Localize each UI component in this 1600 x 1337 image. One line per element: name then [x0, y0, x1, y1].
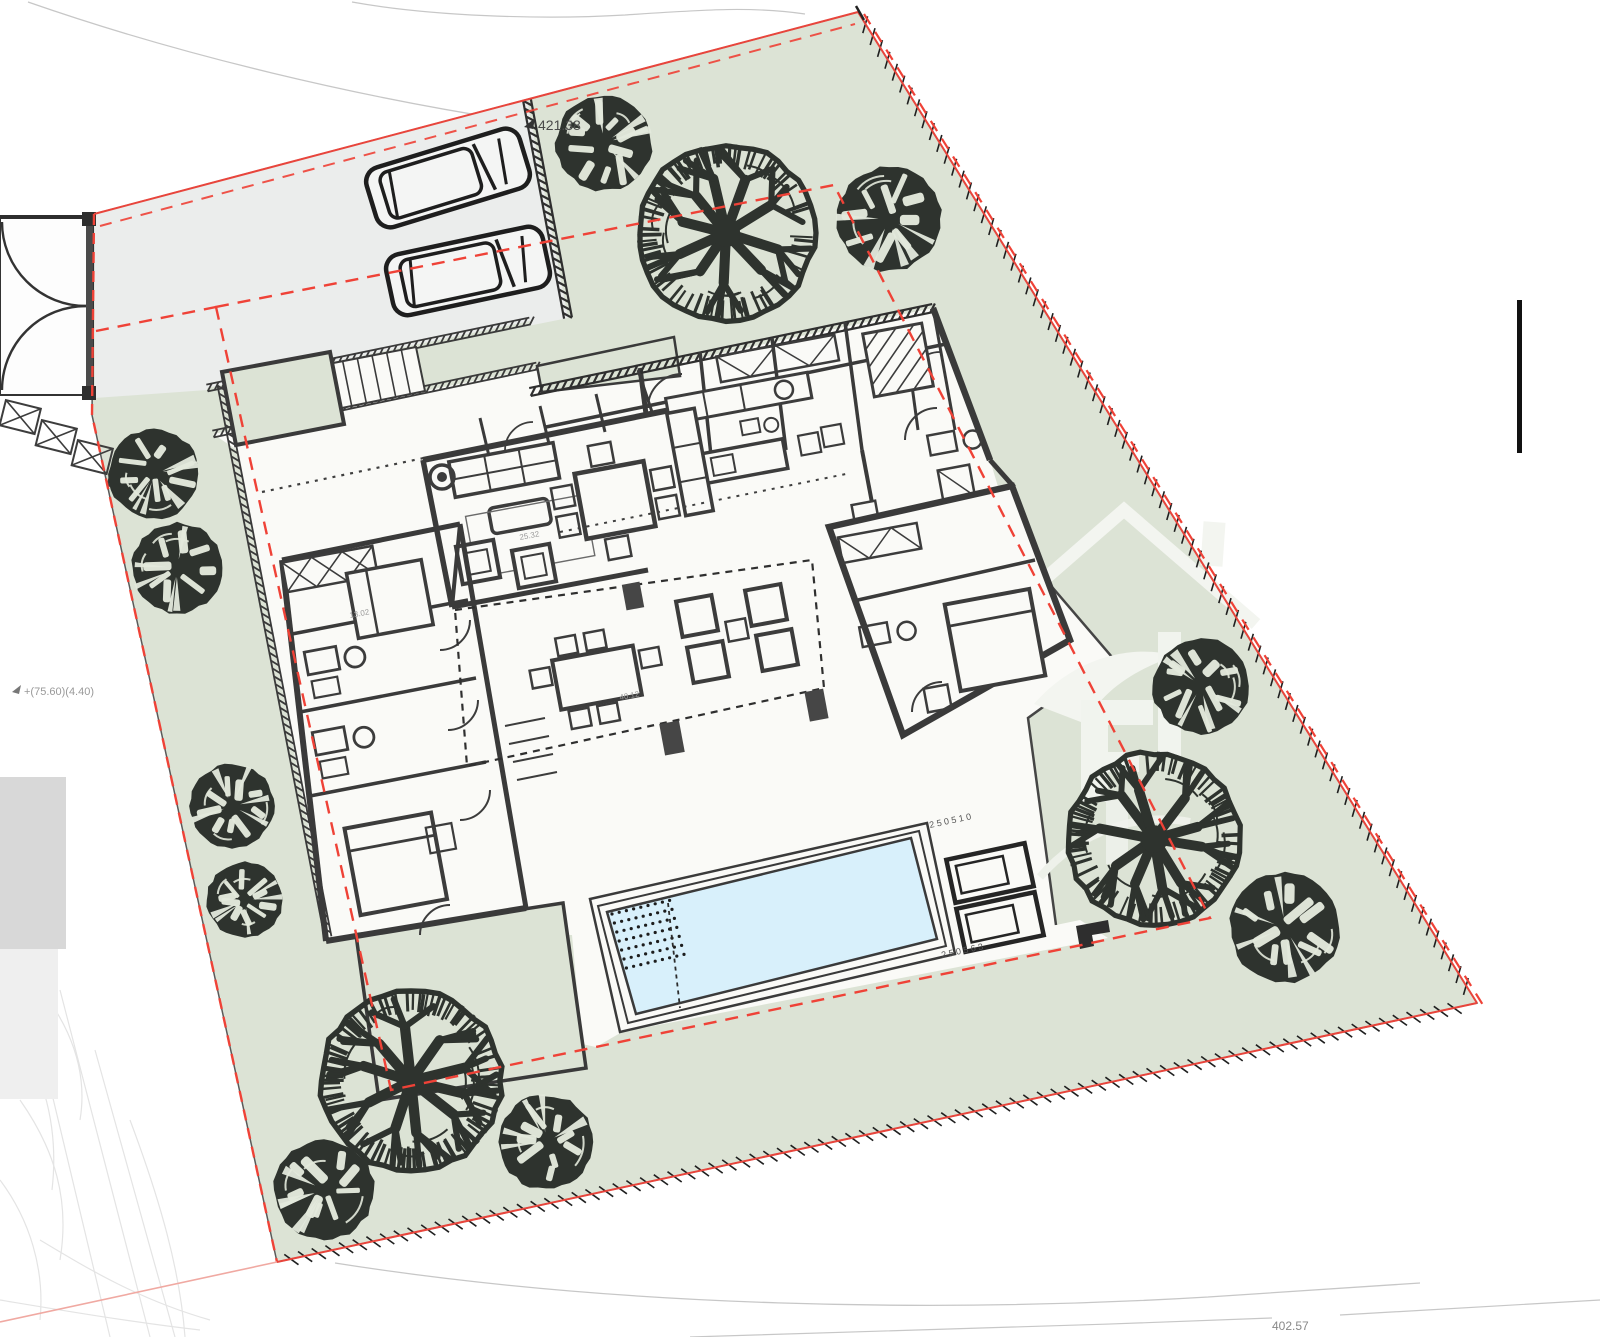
- svg-text:421.38: 421.38: [538, 117, 581, 133]
- svg-text:+(75.60)(4.40): +(75.60)(4.40): [24, 686, 94, 698]
- svg-text:402.57: 402.57: [1272, 1319, 1309, 1333]
